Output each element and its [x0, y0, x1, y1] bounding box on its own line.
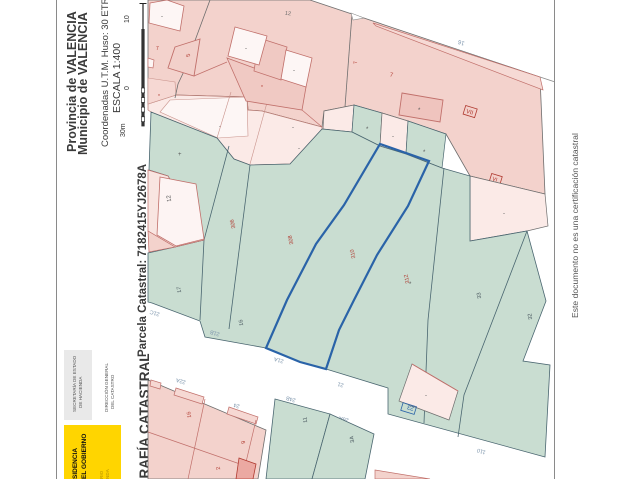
svg-text:-: -	[245, 46, 247, 52]
svg-text:3A: 3A	[349, 435, 356, 443]
svg-text:0: 0	[124, 86, 131, 90]
svg-text:Parcela Catastral: 7182415YJ26: Parcela Catastral: 7182415YJ2678A	[137, 164, 149, 357]
svg-text:-: -	[161, 14, 163, 20]
svg-text:-: -	[292, 125, 294, 131]
svg-text:*: *	[158, 94, 160, 100]
svg-text:DE HACIENDA: DE HACIENDA	[78, 376, 83, 408]
svg-text:*: *	[261, 85, 263, 91]
svg-text:32: 32	[527, 313, 534, 320]
svg-text:-: -	[293, 68, 295, 74]
svg-text:10: 10	[124, 15, 131, 23]
svg-text:16: 16	[238, 319, 245, 326]
svg-text:17: 17	[176, 286, 183, 293]
svg-text:Este documento no es una certi: Este documento no es una certificación c…	[570, 133, 580, 318]
svg-text:16: 16	[186, 411, 193, 418]
svg-text:Municipio de VALENCIA: Municipio de VALENCIA	[76, 12, 90, 155]
svg-text:7: 7	[156, 46, 159, 52]
svg-text:NDA: NDA	[105, 468, 110, 479]
svg-text:-: -	[298, 146, 300, 152]
svg-text:SIDENCIA: SIDENCIA	[72, 448, 79, 479]
svg-text:EL GOBIERNO: EL GOBIERNO	[81, 434, 88, 479]
svg-text:DEL CATASTRO: DEL CATASTRO	[110, 374, 115, 409]
svg-text:Coordenadas U.T.M. Huso: 30 ET: Coordenadas U.T.M. Huso: 30 ETRS89	[100, 0, 111, 147]
svg-text:33: 33	[476, 292, 483, 299]
svg-text:-: -	[503, 211, 505, 217]
svg-text:11: 11	[302, 416, 309, 423]
svg-text:ESCALA 1:400: ESCALA 1:400	[111, 43, 123, 113]
svg-text:DIRECCIÓN GENERAL: DIRECCIÓN GENERAL	[103, 363, 109, 412]
svg-text:+: +	[178, 152, 182, 158]
svg-text:-: -	[425, 393, 427, 399]
svg-text:12: 12	[284, 11, 291, 18]
svg-text:SECRETARÍA DE ESTADO: SECRETARÍA DE ESTADO	[71, 355, 77, 412]
svg-text:-: -	[392, 134, 394, 140]
svg-text:RIO: RIO	[99, 470, 104, 479]
svg-text:30m: 30m	[120, 123, 127, 137]
